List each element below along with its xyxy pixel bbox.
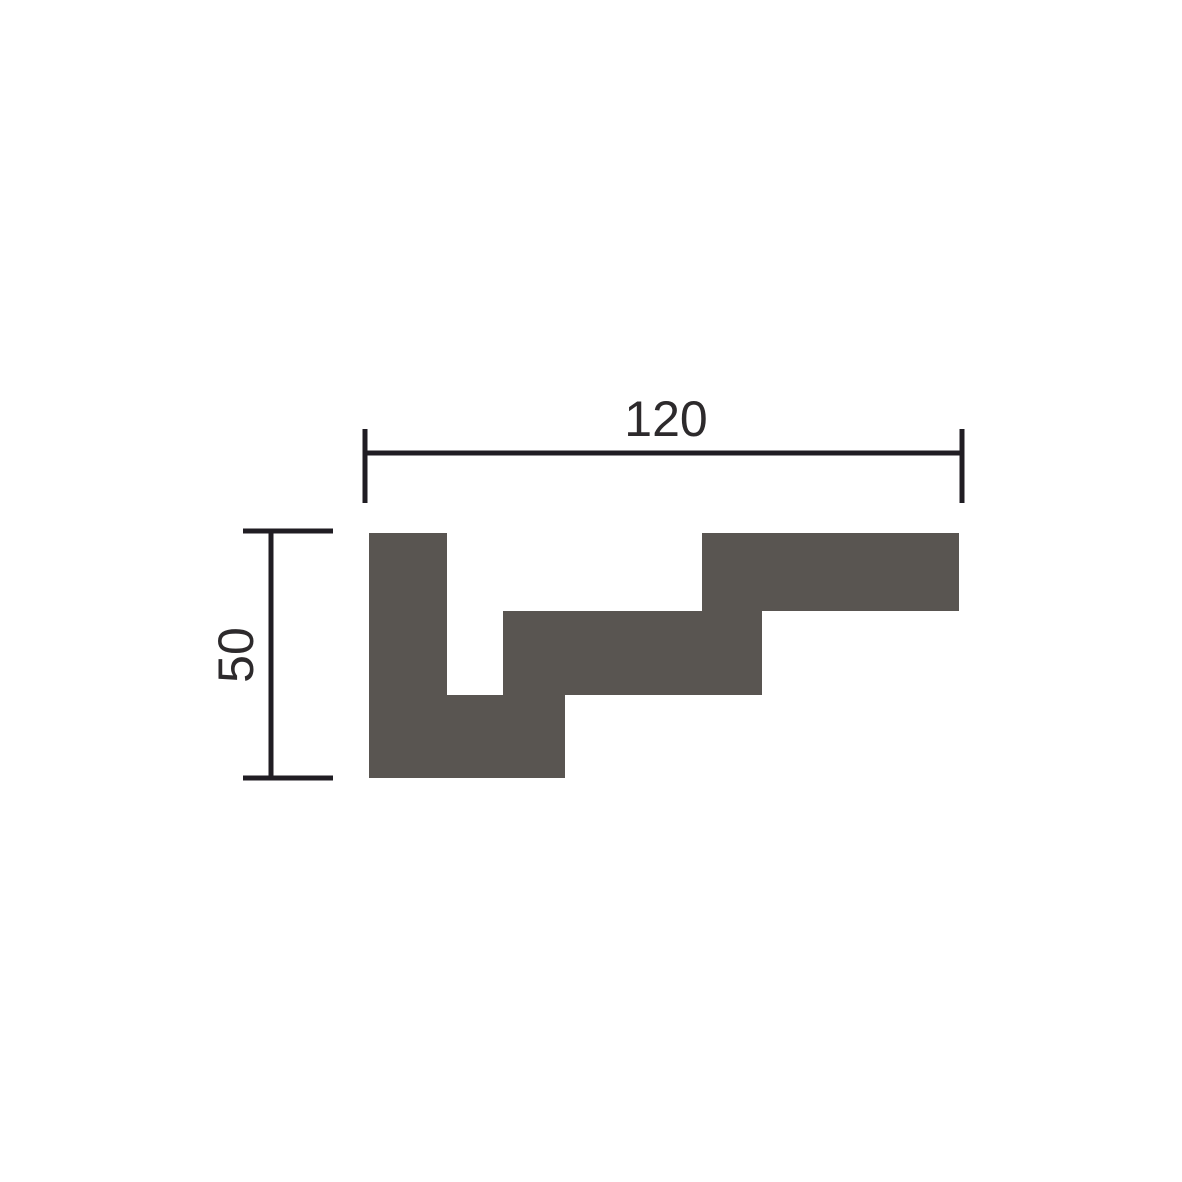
height-dimension-label: 50 [207, 627, 265, 683]
width-dimension-label: 120 [624, 390, 707, 448]
profile-shape [369, 533, 959, 778]
profile-svg [0, 0, 1182, 1182]
diagram-canvas: 120 50 [0, 0, 1182, 1182]
